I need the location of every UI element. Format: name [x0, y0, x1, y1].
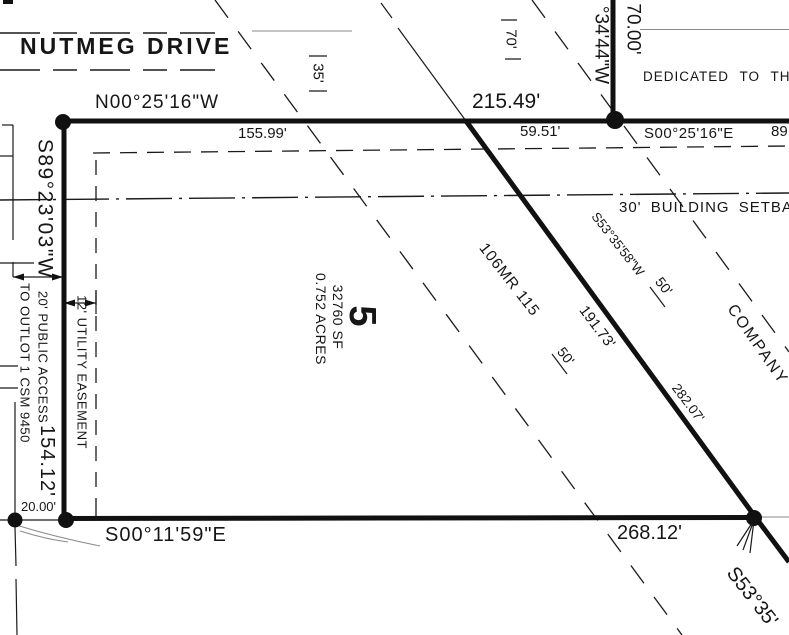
west-bearing-label: S89°23'03"W	[35, 139, 56, 279]
diagonal-boundary	[466, 121, 789, 562]
edge-clipped-mark	[3, 0, 13, 4]
diagonal-thin-extension	[398, 28, 466, 121]
utility-easement-line-horizontal	[93, 146, 789, 153]
lot-area-acres-label: 0.752 ACRES	[314, 273, 328, 365]
monument-dot-nw	[55, 114, 71, 130]
public-access-label: 20' PUBLIC ACCESS	[37, 291, 50, 423]
south-length-dim: 268.12'	[617, 523, 682, 543]
diagonal-thin-dash	[381, 3, 392, 18]
row-width-35-dim: 35'	[311, 63, 326, 83]
monument-dot-sw-outer	[8, 513, 23, 528]
lot-line-below	[15, 527, 17, 635]
boundary-lines	[63, 0, 789, 562]
utility-easement-label: 12' UTILITY EASEMENT	[76, 295, 89, 449]
access-strip-west-line	[13, 125, 15, 519]
south-bearing-label: S00°11'59"E	[105, 525, 227, 545]
arrow-left-20	[13, 274, 24, 281]
monument-dot-ne	[606, 111, 624, 129]
monument-dot-se	[746, 510, 762, 526]
north-segment-a-dim: 155.99'	[238, 126, 287, 141]
lot-area-sf-label: 32760 SF	[331, 285, 345, 350]
street-east-bearing-partial: °34'44"W	[592, 6, 611, 84]
west-length-dim: 154.12'	[37, 425, 57, 497]
north-bearing-label: N00°25'16"W	[95, 93, 219, 112]
plat-sheet: NUTMEG DRIVE N00°25'16"W 215.49' 155.99'…	[0, 0, 789, 635]
curb-return-curve-1	[16, 525, 100, 546]
street-name-label: NUTMEG DRIVE	[20, 35, 232, 58]
dedication-label: DEDICATED TO THE PUB	[643, 70, 789, 84]
adjacent-dim-partial: 89	[771, 124, 788, 139]
lot-number-label: 5	[343, 305, 381, 326]
adjacent-bearing-label: S00°25'16"E	[644, 126, 734, 141]
outlot-ref-label: TO OUTLOT 1 CSM 9450	[19, 283, 32, 443]
north-total-dim: 215.49'	[472, 91, 540, 112]
north-segment-b-dim: 59.51'	[520, 124, 560, 139]
monument-dot-sw	[58, 512, 74, 528]
street-east-length-dim: 70.00'	[624, 3, 643, 54]
building-setback-label: 30' BUILDING SETBACK	[619, 200, 789, 215]
south-boundary	[64, 518, 757, 519]
diagonal-easement-line-b	[532, 0, 789, 352]
row-width-70-dim: 70'	[504, 29, 519, 49]
south-tie-dim: 20.00'	[21, 500, 56, 513]
